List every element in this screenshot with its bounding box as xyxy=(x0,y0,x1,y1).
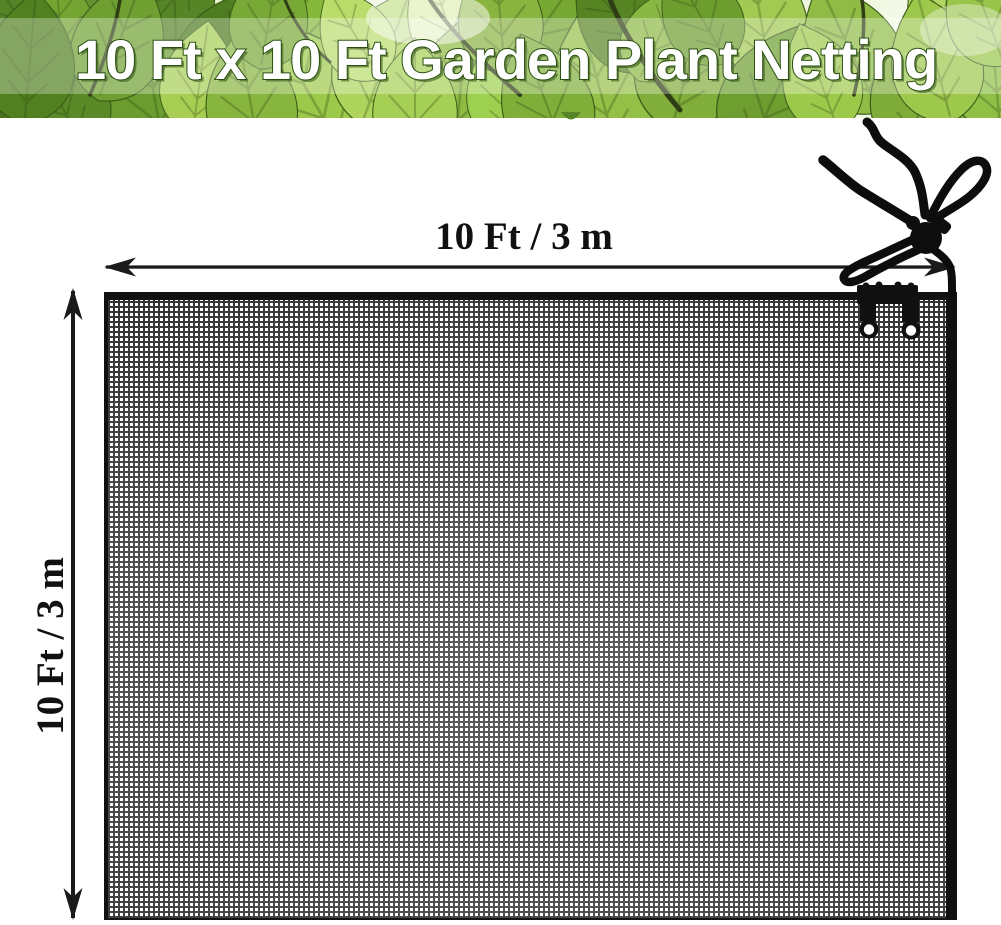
svg-text:10 Ft / 3 m: 10 Ft / 3 m xyxy=(29,557,72,735)
svg-text:10 Ft / 3 m: 10 Ft / 3 m xyxy=(435,215,613,258)
